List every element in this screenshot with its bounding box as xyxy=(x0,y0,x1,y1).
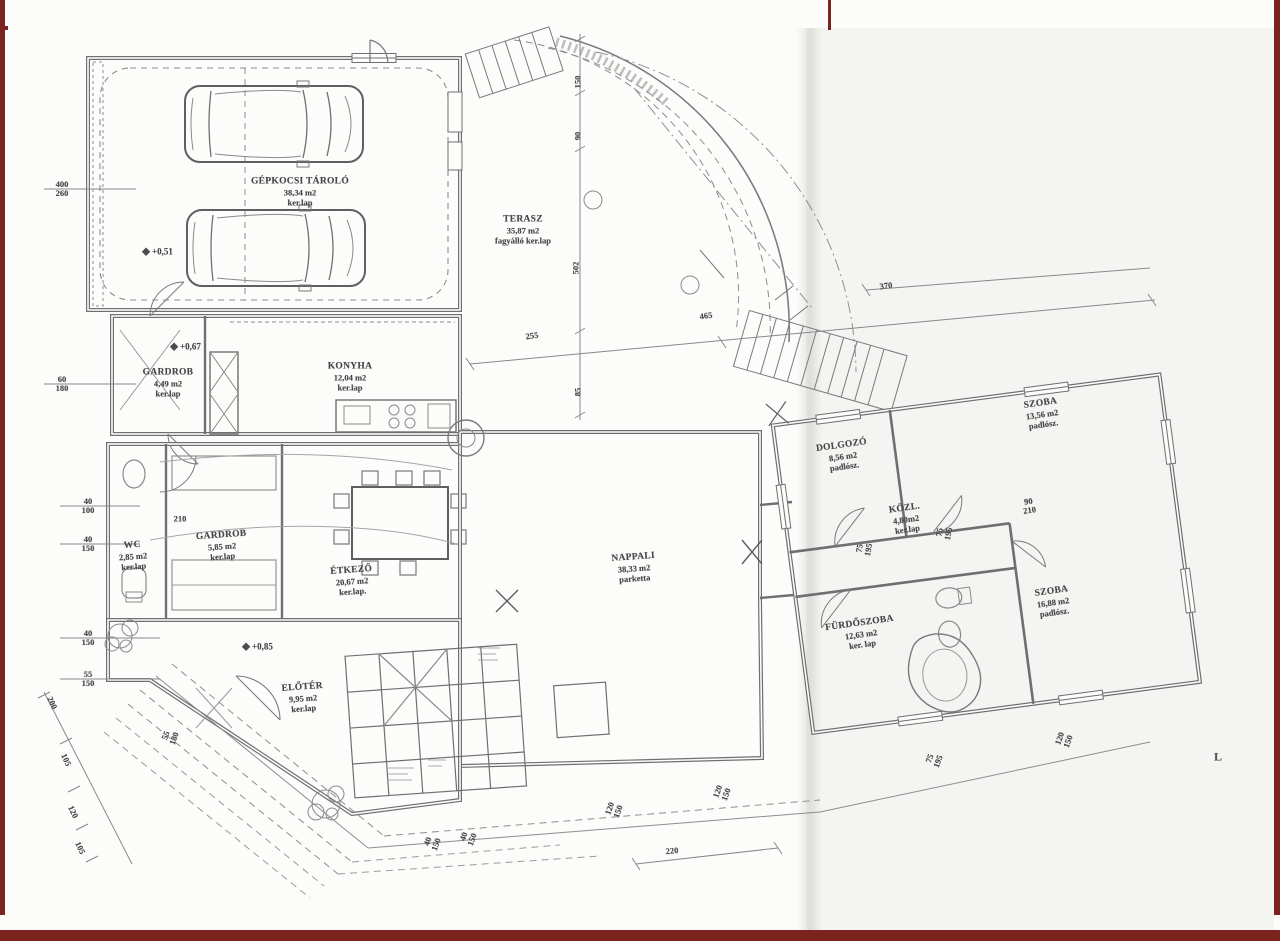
room-label-etkezo: ÉTKEZŐ20,67 m2ker.lap. xyxy=(330,564,374,598)
dimension-label: 120 xyxy=(66,804,79,819)
level-marker: +0,51 xyxy=(143,247,173,258)
dimension-label: 55150 xyxy=(82,670,95,688)
dimension-label: 40150 xyxy=(82,535,95,553)
room-label-szoba-1: SZOBA13,56 m2padlósz. xyxy=(1023,396,1061,432)
room-label-gepkocsi-tarolo: GÉPKOCSI TÁROLÓ38,34 m2ker.lap xyxy=(251,176,349,207)
dimension-label: 75195 xyxy=(854,541,874,557)
frame-right xyxy=(1274,0,1280,915)
level-star-icon xyxy=(242,642,250,650)
dimension-label: 255 xyxy=(525,331,539,342)
dimension-label: 55180 xyxy=(159,728,180,746)
dimension-label: 220 xyxy=(665,846,678,856)
dimension-label: 400260 xyxy=(56,180,69,198)
level-marker: +0,67 xyxy=(171,342,201,353)
dimension-label: 105 xyxy=(73,840,86,855)
level-marker: +0,85 xyxy=(243,642,273,653)
dimension-label: 40150 xyxy=(82,629,95,647)
room-label-dolgozo: DOLGOZÓ8,56 m2padlósz. xyxy=(815,437,870,475)
dimension-label: 210 xyxy=(174,515,187,524)
room-label-nappali: NAPPALI38,33 m2parketta xyxy=(611,551,657,585)
dimension-label: 90 xyxy=(574,132,583,141)
dimension-label: 502 xyxy=(572,262,581,275)
dimension-label: 370 xyxy=(879,281,893,292)
dimension-label: 90210 xyxy=(1021,496,1036,515)
room-label-konyha: KONYHA12,04 m2ker.lap xyxy=(328,361,373,392)
floor-plan-scan: GÉPKOCSI TÁROLÓ38,34 m2ker.lapTERASZ35,8… xyxy=(0,0,1280,941)
dimension-label: 40150 xyxy=(457,829,478,847)
room-label-eloter: ELŐTÉR9,95 m2ker.lap xyxy=(281,681,324,715)
dimension-label: 120150 xyxy=(711,784,732,802)
frame-bottom xyxy=(0,930,1280,941)
dimension-label: 40150 xyxy=(421,834,442,852)
dimension-label: 120150 xyxy=(603,801,624,819)
dimension-label: 105 xyxy=(59,752,72,767)
level-star-icon xyxy=(170,342,178,350)
level-star-icon xyxy=(142,247,150,255)
dimension-label: 85 xyxy=(574,388,583,397)
dimension-label: 200 xyxy=(45,695,58,710)
frame-left xyxy=(0,0,5,915)
dimension-label: 75195 xyxy=(923,751,944,769)
room-label-gardrob-2: GARDROB5,85 m2ker.lap xyxy=(196,529,249,564)
room-label-wc: WC2,85 m2ker.lap xyxy=(118,539,148,572)
room-label-kozl: KÖZL.4,80m2ker.lap xyxy=(888,501,923,536)
dimension-label: L xyxy=(1214,751,1222,764)
room-label-gardrob-1: GARDROB4,49 m2ker.lap xyxy=(143,367,194,398)
frame-top-tick xyxy=(828,0,831,30)
room-label-furdoszoba: FÜRDŐSZOBA12,63 m2ker. lap xyxy=(825,614,898,655)
room-label-terasz: TERASZ35,87 m2fagyálló ker.lap xyxy=(495,214,551,245)
dimension-label: 40100 xyxy=(82,497,95,515)
dimension-label: 120150 xyxy=(1053,731,1074,749)
dimension-label: 465 xyxy=(699,311,713,322)
labels-layer: GÉPKOCSI TÁROLÓ38,34 m2ker.lapTERASZ35,8… xyxy=(0,0,1280,941)
dimension-label: 60180 xyxy=(56,375,69,393)
room-label-szoba-2: SZOBA16,88 m2padlósz. xyxy=(1034,584,1072,620)
dimension-label: 75195 xyxy=(934,525,954,541)
dimension-label: 150 xyxy=(574,76,583,89)
